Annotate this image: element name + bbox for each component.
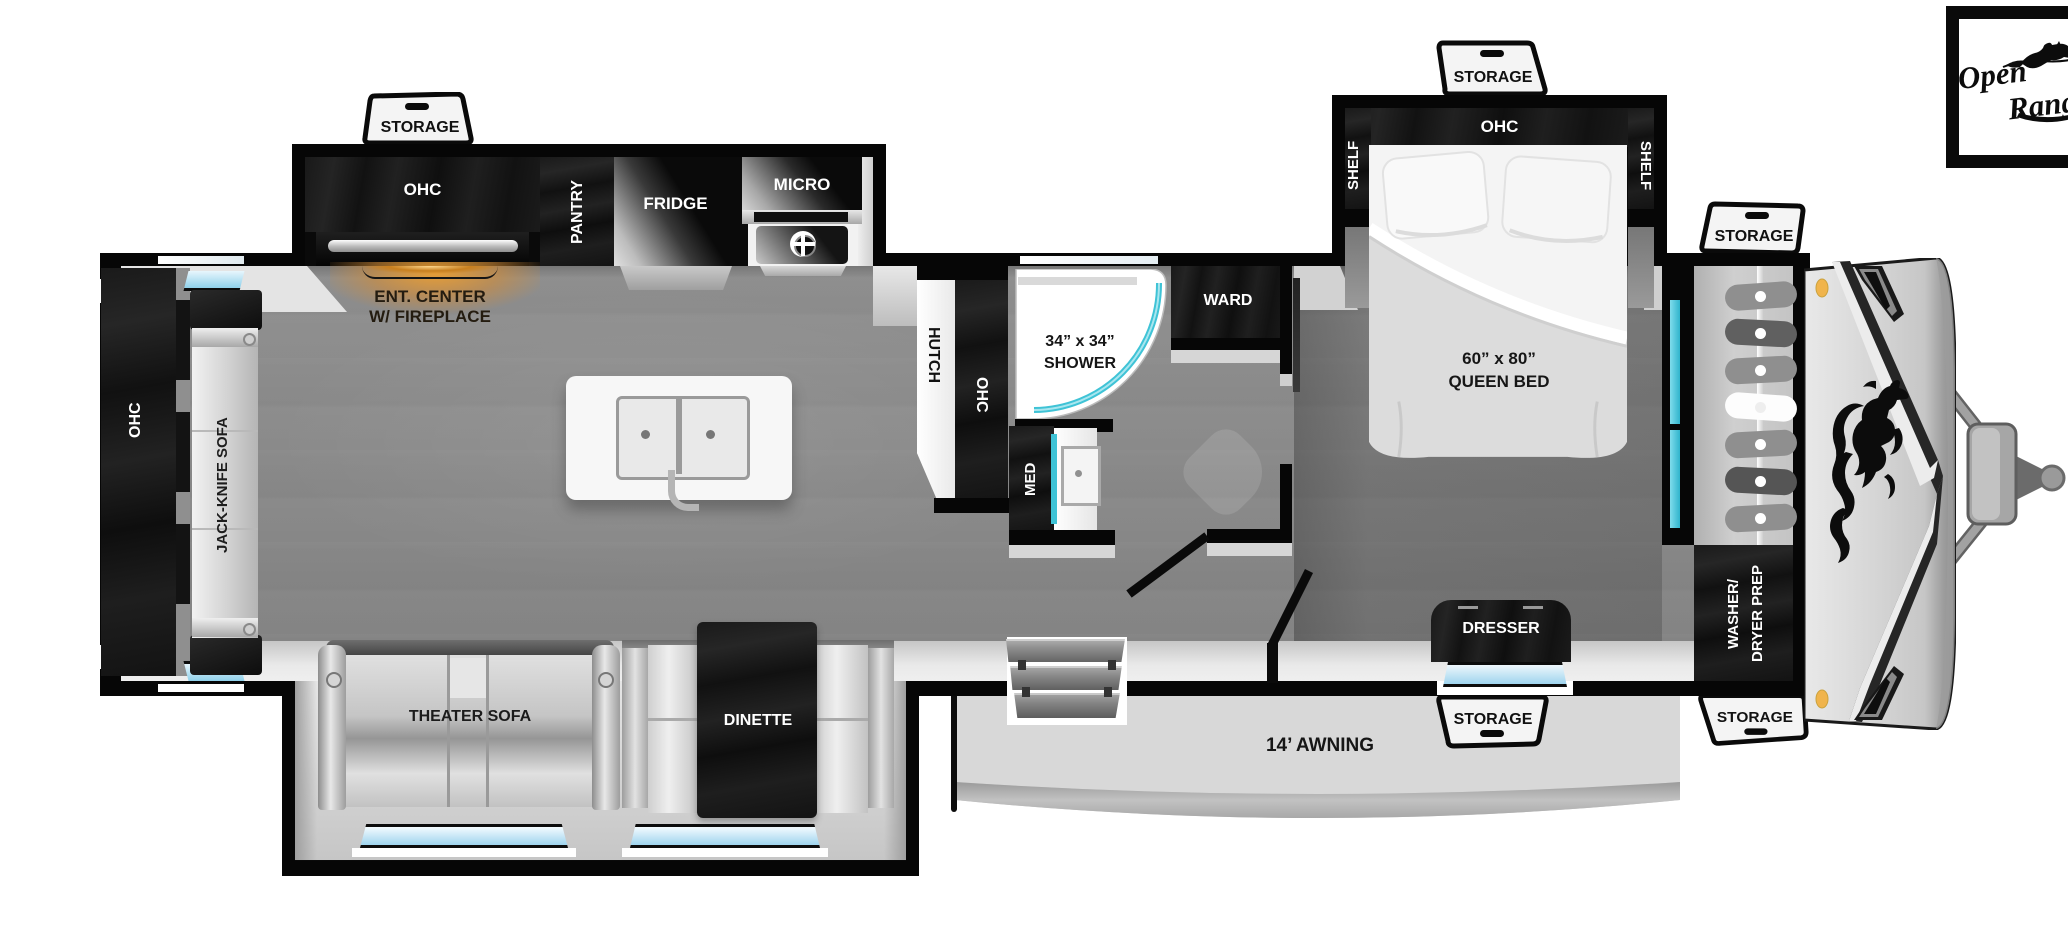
svg-text:STORAGE: STORAGE <box>1454 711 1533 728</box>
svg-text:STORAGE: STORAGE <box>381 119 460 136</box>
svg-text:STORAGE: STORAGE <box>1454 69 1533 86</box>
svg-text:STORAGE: STORAGE <box>1715 228 1794 245</box>
svg-text:STORAGE: STORAGE <box>1717 709 1793 726</box>
